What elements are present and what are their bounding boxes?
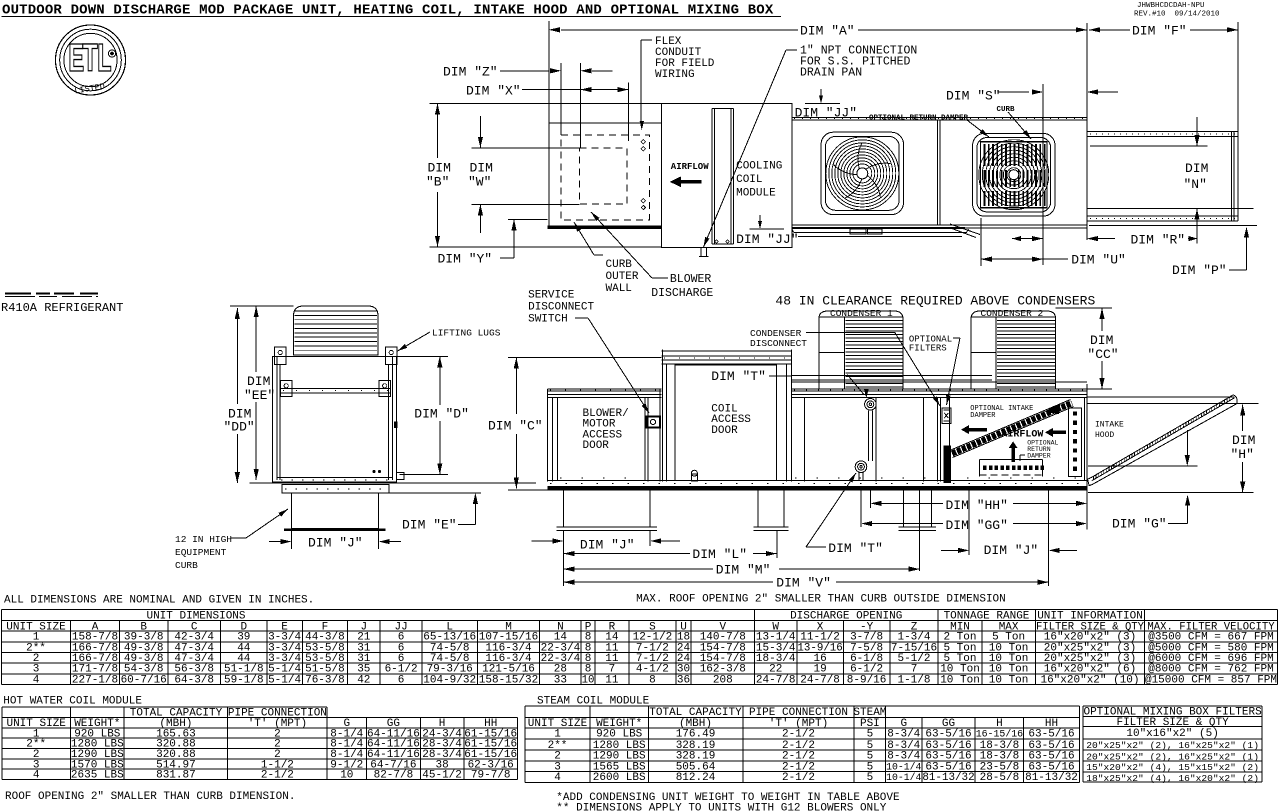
svg-text:"H": "H" [1231, 447, 1254, 462]
svg-text:ROOF OPENING 2" SMALLER THAN C: ROOF OPENING 2" SMALLER THAN CURB DIMENS… [5, 791, 295, 803]
svg-text:831.87: 831.87 [156, 770, 196, 782]
svg-text:DIM "J": DIM "J" [308, 536, 363, 551]
svg-text:28-5/8: 28-5/8 [980, 772, 1020, 784]
svg-text:20"x25"x2" (2), 16"x25"x2" (1): 20"x25"x2" (2), 16"x25"x2" (1) [1086, 740, 1259, 751]
svg-text:81-13/32: 81-13/32 [922, 772, 974, 784]
svg-text:DIM "P": DIM "P" [1172, 263, 1227, 278]
svg-text:63-5/16: 63-5/16 [925, 729, 971, 741]
svg-text:MODULE: MODULE [736, 188, 776, 200]
svg-text:DIM: DIM [1232, 433, 1255, 448]
svg-text:@15000 CFM = 857 FPM: @15000 CFM = 857 FPM [1145, 674, 1277, 686]
svg-text:DIM "G": DIM "G" [1112, 517, 1167, 532]
svg-text:INTAKE: INTAKE [1095, 421, 1124, 430]
svg-text:DIM: DIM [1185, 161, 1208, 176]
svg-text:45-1/2: 45-1/2 [422, 770, 462, 782]
svg-text:AIRFLOW: AIRFLOW [671, 162, 709, 172]
svg-text:4: 4 [33, 674, 40, 686]
svg-text:2635 LBS: 2635 LBS [71, 770, 124, 782]
svg-text:59-1/8: 59-1/8 [224, 674, 264, 686]
svg-text:DIM "S": DIM "S" [946, 89, 1001, 104]
svg-text:10: 10 [340, 770, 353, 782]
svg-text:SERVICE: SERVICE [528, 290, 575, 302]
svg-text:WIRING: WIRING [655, 69, 695, 81]
svg-text:HOT WATER COIL MODULE: HOT WATER COIL MODULE [3, 696, 142, 708]
svg-text:DIM "R": DIM "R" [1131, 233, 1186, 248]
svg-text:CURB: CURB [606, 259, 633, 271]
svg-text:63-5/16: 63-5/16 [1028, 729, 1074, 741]
svg-text:DIM "X": DIM "X" [466, 83, 521, 98]
svg-text:8-3/4: 8-3/4 [887, 729, 920, 741]
svg-text:DAMPER: DAMPER [970, 412, 996, 420]
svg-text:11: 11 [605, 674, 619, 686]
svg-text:16"x20"x2" (10): 16"x20"x2" (10) [1040, 674, 1139, 686]
svg-text:EQUIPMENT: EQUIPMENT [175, 547, 227, 558]
svg-text:79-7/8: 79-7/8 [471, 770, 511, 782]
svg-text:DIM "M": DIM "M" [716, 563, 771, 578]
svg-text:10 Ton: 10 Ton [989, 674, 1029, 686]
svg-text:DIM "GG": DIM "GG" [946, 518, 1008, 533]
svg-text:ALL DIMENSIONS ARE NOMINAL AND: ALL DIMENSIONS ARE NOMINAL AND GIVEN IN … [4, 595, 314, 607]
svg-text:"EE": "EE" [244, 388, 275, 403]
svg-text:DIM "L": DIM "L" [692, 547, 747, 562]
svg-text:36: 36 [677, 674, 690, 686]
svg-text:81-13/32: 81-13/32 [1025, 772, 1078, 784]
svg-text:DIM "J": DIM "J" [580, 538, 635, 553]
svg-text:SWITCH: SWITCH [528, 314, 568, 326]
svg-text:5: 5 [867, 729, 874, 741]
svg-text:10-1/4: 10-1/4 [886, 772, 921, 783]
svg-text:DIM "J": DIM "J" [984, 543, 1039, 558]
svg-text:10: 10 [582, 674, 595, 686]
svg-text:1: 1 [554, 729, 561, 741]
svg-text:15"x20"x2" (4), 15"x15"x2" (2): 15"x20"x2" (4), 15"x15"x2" (2) [1086, 762, 1259, 773]
svg-text:8: 8 [649, 674, 656, 686]
svg-text:CURB: CURB [997, 106, 1016, 114]
svg-text:208: 208 [713, 674, 733, 686]
svg-text:COIL: COIL [736, 174, 762, 186]
svg-text:DIM "T": DIM "T" [711, 369, 766, 384]
svg-text:158-15/32: 158-15/32 [479, 674, 538, 686]
svg-text:ETL: ETL [68, 38, 111, 84]
svg-text:COOLING: COOLING [736, 161, 782, 173]
svg-text:18"x25"x2" (4), 16"x20"x2" (2): 18"x25"x2" (4), 16"x20"x2" (2) [1086, 773, 1259, 784]
svg-text:5: 5 [867, 772, 874, 784]
svg-text:DIM "V": DIM "V" [776, 576, 831, 591]
svg-text:2-1/2: 2-1/2 [782, 772, 815, 784]
svg-text:DIM "HH": DIM "HH" [946, 498, 1008, 513]
svg-text:10"x16"x2" (5): 10"x16"x2" (5) [1126, 728, 1218, 740]
svg-text:2-1/2: 2-1/2 [261, 770, 294, 782]
svg-text:10 Ton: 10 Ton [940, 674, 980, 686]
svg-text:DISCHARGE OPENING: DISCHARGE OPENING [790, 611, 902, 623]
svg-text:DAMPER: DAMPER [1027, 453, 1051, 460]
svg-text:DRAIN PAN: DRAIN PAN [800, 67, 862, 80]
svg-text:42: 42 [357, 674, 370, 686]
svg-text:64-3/8: 64-3/8 [174, 674, 214, 686]
svg-text:104-9/32: 104-9/32 [423, 674, 476, 686]
svg-text:DISCONNECT: DISCONNECT [750, 338, 807, 349]
svg-text:DIM: DIM [428, 161, 451, 176]
svg-text:FILTERS: FILTERS [909, 344, 947, 354]
svg-text:DIM "C": DIM "C" [488, 419, 543, 434]
svg-text:REV.#10 09/14/2010: REV.#10 09/14/2010 [1134, 11, 1220, 19]
svg-text:DOOR: DOOR [583, 440, 610, 452]
svg-text:"CC": "CC" [1087, 347, 1118, 362]
svg-text:** DIMENSIONS APPLY TO UNITS W: ** DIMENSIONS APPLY TO UNITS WITH G12 BL… [556, 803, 886, 811]
svg-text:R410A REFRIGERANT: R410A REFRIGERANT [1, 301, 123, 315]
svg-text:DIM "D": DIM "D" [414, 407, 469, 422]
svg-text:"B": "B" [426, 175, 449, 190]
svg-text:2600 LBS: 2600 LBS [593, 772, 646, 784]
svg-text:8-9/16: 8-9/16 [847, 674, 887, 686]
svg-text:"W": "W" [468, 175, 491, 190]
svg-text:JHWBHCDCDAH-NPU: JHWBHCDCDAH-NPU [1137, 2, 1205, 10]
svg-text:20"x25"x2" (2), 16"x25"x2" (1): 20"x25"x2" (2), 16"x25"x2" (1) [1086, 751, 1259, 762]
svg-text:60-7/16: 60-7/16 [121, 674, 167, 686]
svg-text:OUTER: OUTER [606, 271, 639, 283]
svg-text:6: 6 [398, 674, 405, 686]
svg-text:DIM "JJ": DIM "JJ" [795, 106, 857, 121]
svg-text:LIFTING LUGS: LIFTING LUGS [432, 328, 501, 339]
svg-text:CURB: CURB [175, 560, 198, 571]
svg-text:DIM: DIM [247, 374, 270, 389]
svg-text:176.49: 176.49 [676, 729, 716, 741]
svg-text:12 IN HIGH: 12 IN HIGH [175, 534, 232, 545]
svg-text:24-7/8: 24-7/8 [800, 674, 840, 686]
svg-text:HOOD: HOOD [1095, 431, 1114, 440]
svg-text:OPTIONAL RETURN DAMPER: OPTIONAL RETURN DAMPER [869, 115, 969, 123]
svg-text:227-1/8: 227-1/8 [72, 674, 118, 686]
svg-text:33: 33 [554, 674, 567, 686]
svg-text:48 IN CLEARANCE REQUIRED ABOVE: 48 IN CLEARANCE REQUIRED ABOVE CONDENSER… [775, 294, 1095, 309]
svg-text:MAX. ROOF OPENING 2" SMALLER T: MAX. ROOF OPENING 2" SMALLER THAN CURB O… [636, 594, 1006, 606]
svg-text:DOOR: DOOR [711, 425, 738, 437]
svg-text:DIM "Z": DIM "Z" [443, 65, 498, 80]
svg-text:DISCONNECT: DISCONNECT [528, 302, 594, 314]
svg-text:DISCHARGE: DISCHARGE [651, 287, 713, 300]
svg-text:812.24: 812.24 [676, 772, 716, 784]
svg-text:BLOWER: BLOWER [670, 273, 712, 286]
svg-text:DIM "E": DIM "E" [402, 518, 457, 533]
svg-text:DIM "Y": DIM "Y" [438, 252, 493, 267]
svg-text:24-7/8: 24-7/8 [756, 674, 796, 686]
svg-text:76-3/8: 76-3/8 [305, 674, 345, 686]
svg-text:1-1/8: 1-1/8 [897, 674, 930, 686]
svg-text:DIM "U": DIM "U" [1071, 253, 1126, 268]
svg-text:DIM "F": DIM "F" [1132, 24, 1187, 39]
svg-text:DIM: DIM [1090, 333, 1113, 348]
svg-text:DIM "T": DIM "T" [828, 541, 883, 556]
svg-text:920 LBS: 920 LBS [596, 729, 643, 741]
svg-text:4: 4 [554, 772, 561, 784]
svg-text:82-7/8: 82-7/8 [374, 770, 414, 782]
svg-text:5-1/4: 5-1/4 [268, 674, 301, 686]
svg-text:4: 4 [33, 770, 40, 782]
svg-text:DIM "A": DIM "A" [800, 24, 855, 39]
svg-text:"N": "N" [1184, 177, 1207, 192]
svg-text:2-1/2: 2-1/2 [782, 729, 815, 741]
svg-text:"DD": "DD" [224, 420, 255, 435]
svg-text:10-1/4: 10-1/4 [886, 762, 921, 773]
svg-text:DIM "JJ": DIM "JJ" [736, 232, 798, 247]
svg-text:16-15/16: 16-15/16 [976, 729, 1023, 740]
svg-text:DIM: DIM [470, 161, 493, 176]
svg-text:WALL: WALL [606, 283, 632, 295]
